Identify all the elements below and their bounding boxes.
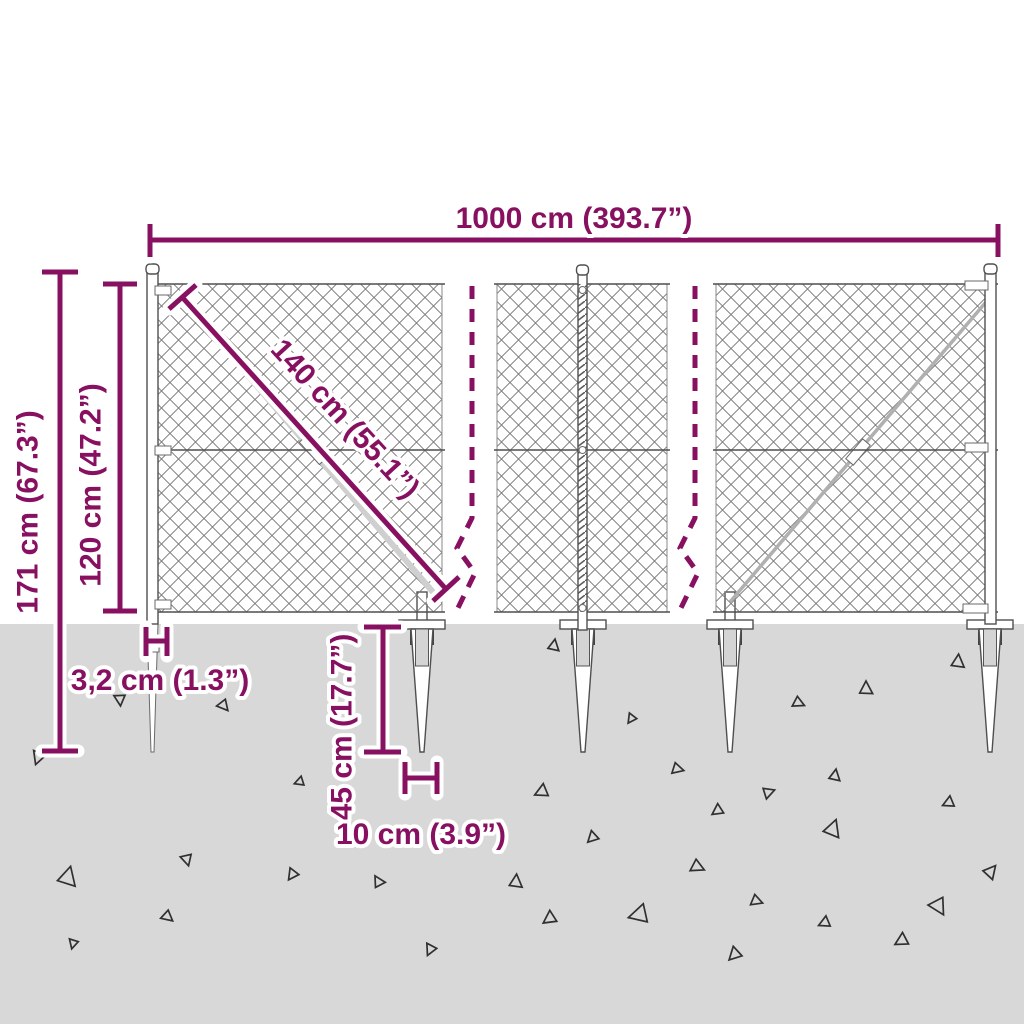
anchor-width-label: 10 cm (3.9”) xyxy=(336,818,506,851)
fence-height-label: 120 cm (47.2”) xyxy=(75,383,108,586)
break-line-left xyxy=(456,286,475,612)
fence-panels xyxy=(147,284,998,612)
fence-panel-1 xyxy=(147,284,445,612)
spike-length-label: 45 cm (17.7”) xyxy=(326,634,359,821)
fence-dimension-diagram: 1000 cm (393.7”) 171 cm (67.3”) 120 cm (… xyxy=(0,0,1024,1024)
total-height-label: 171 cm (67.3”) xyxy=(12,410,45,613)
dim-fence-height-line xyxy=(103,284,137,611)
diagram-canvas: 1000 cm (393.7”) 171 cm (67.3”) 120 cm (… xyxy=(0,0,1024,1024)
post-width-label: 3,2 cm (1.3”) xyxy=(71,664,249,697)
total-width-label: 1000 cm (393.7”) xyxy=(456,202,693,235)
fence-panel-3 xyxy=(713,284,998,612)
break-line-right xyxy=(679,286,698,612)
fence-post-middle xyxy=(577,265,589,630)
